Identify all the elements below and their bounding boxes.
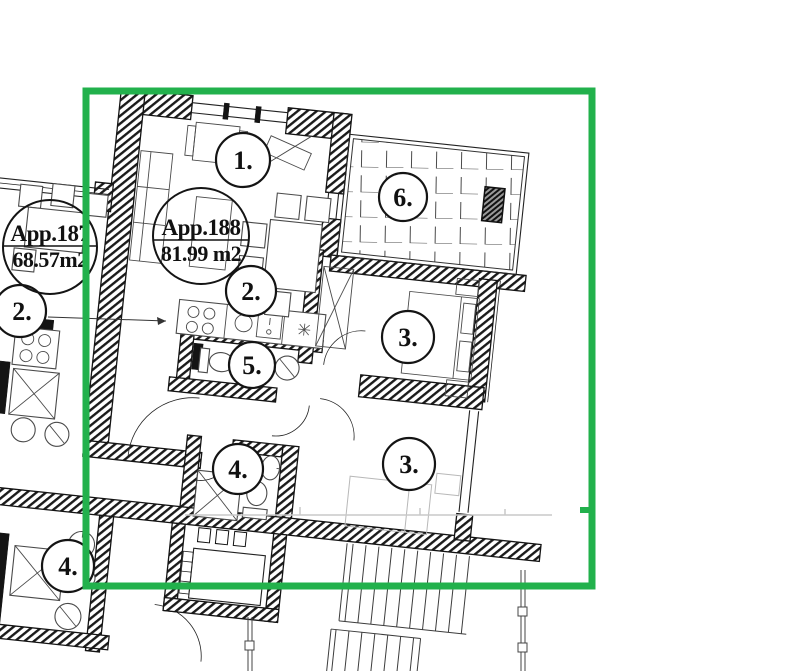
- room-label-bedroom-lower: 3.: [399, 450, 419, 479]
- elevator: [163, 523, 287, 623]
- wall-lower-right-stub: [454, 514, 473, 542]
- room-label-app187-kitchen: 2.: [12, 297, 32, 326]
- room-label-living: 1.: [233, 146, 253, 175]
- app187-name: App.187: [11, 221, 90, 246]
- floor-plan-drawing: 1. 2. 6. 3. 3. 4. 5. 2.: [0, 0, 800, 671]
- app188-label: App.188 81.99 m2: [153, 188, 249, 284]
- wash-basin: [10, 417, 36, 443]
- door-arc-wc: [272, 402, 309, 439]
- elevator-door-mark: [197, 528, 210, 543]
- room-circle-living: 1.: [216, 133, 270, 187]
- app188-name: App.188: [162, 215, 241, 240]
- wall-bedroom-right: [467, 279, 498, 402]
- room-label-bathroom: 4.: [228, 455, 248, 484]
- room-circle-bedroom-lower: 3.: [383, 438, 435, 490]
- door-arc-bedroom-upper: [324, 327, 366, 369]
- pillow: [457, 341, 472, 372]
- floor-plan-page: 1. 2. 6. 3. 3. 4. 5. 2.: [0, 0, 800, 671]
- leader-arrow: [157, 317, 166, 325]
- terrace: [337, 134, 529, 274]
- nightstand-faded: [435, 473, 461, 495]
- room-circle-terrace: 6.: [379, 173, 427, 221]
- pillow: [461, 303, 476, 334]
- wall-left-shared: [83, 88, 145, 456]
- app187-area: 68.57m2: [12, 247, 88, 272]
- stairs: [322, 543, 474, 671]
- door-arc-bedroom-lower: [316, 399, 358, 441]
- toilet-tank: [242, 507, 267, 519]
- room-label-app187-bathroom: 4.: [58, 552, 78, 581]
- elevator-door-mark: [233, 531, 246, 546]
- chair: [305, 196, 331, 222]
- app188-area: 81.99 m2: [161, 241, 242, 266]
- elevator-door-mark: [215, 530, 228, 545]
- railing-center: [245, 617, 254, 671]
- room-circle-kitchen-dining: 2.: [226, 266, 276, 316]
- terrace-planter: [482, 187, 505, 223]
- toilet-tank: [198, 348, 209, 373]
- chair: [241, 222, 267, 248]
- room-label-bedroom-upper: 3.: [398, 323, 418, 352]
- chair: [275, 193, 301, 219]
- room-label-kitchen-dining: 2.: [241, 277, 261, 306]
- room-label-terrace: 6.: [393, 183, 413, 212]
- elevator-cab: [189, 548, 266, 605]
- room-circle-bathroom: 4.: [213, 444, 263, 494]
- room-circle-toilet: 5.: [229, 342, 275, 388]
- room-label-toilet: 5.: [242, 351, 262, 380]
- room-circle-bedroom-upper: 3.: [382, 311, 434, 363]
